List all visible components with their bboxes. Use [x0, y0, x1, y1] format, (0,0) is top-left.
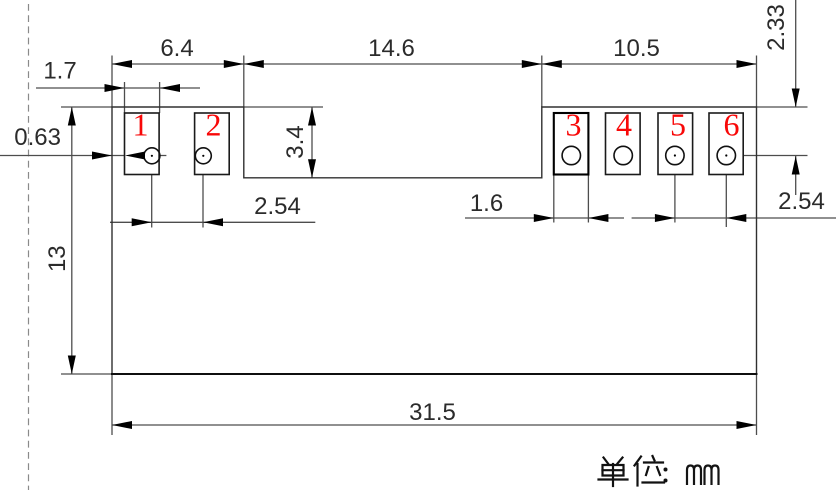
svg-text:14.6: 14.6 [368, 35, 415, 62]
svg-text:1.7: 1.7 [43, 58, 76, 85]
svg-text:1: 1 [133, 107, 149, 143]
svg-text:2: 2 [206, 107, 222, 143]
svg-text:2.54: 2.54 [254, 193, 301, 220]
svg-text:0.63: 0.63 [14, 124, 61, 151]
svg-text:5: 5 [670, 107, 686, 143]
svg-text:4: 4 [616, 107, 632, 143]
svg-text:13: 13 [44, 245, 71, 272]
svg-text:10.5: 10.5 [613, 35, 660, 62]
svg-text:3: 3 [566, 107, 582, 143]
svg-text:31.5: 31.5 [409, 399, 456, 426]
svg-text:1.6: 1.6 [470, 190, 503, 217]
svg-text:6.4: 6.4 [160, 35, 193, 62]
svg-text:2.54: 2.54 [778, 188, 825, 215]
svg-text:2.33: 2.33 [763, 4, 790, 51]
svg-text:6: 6 [724, 107, 740, 143]
svg-text:3.4: 3.4 [282, 125, 309, 158]
